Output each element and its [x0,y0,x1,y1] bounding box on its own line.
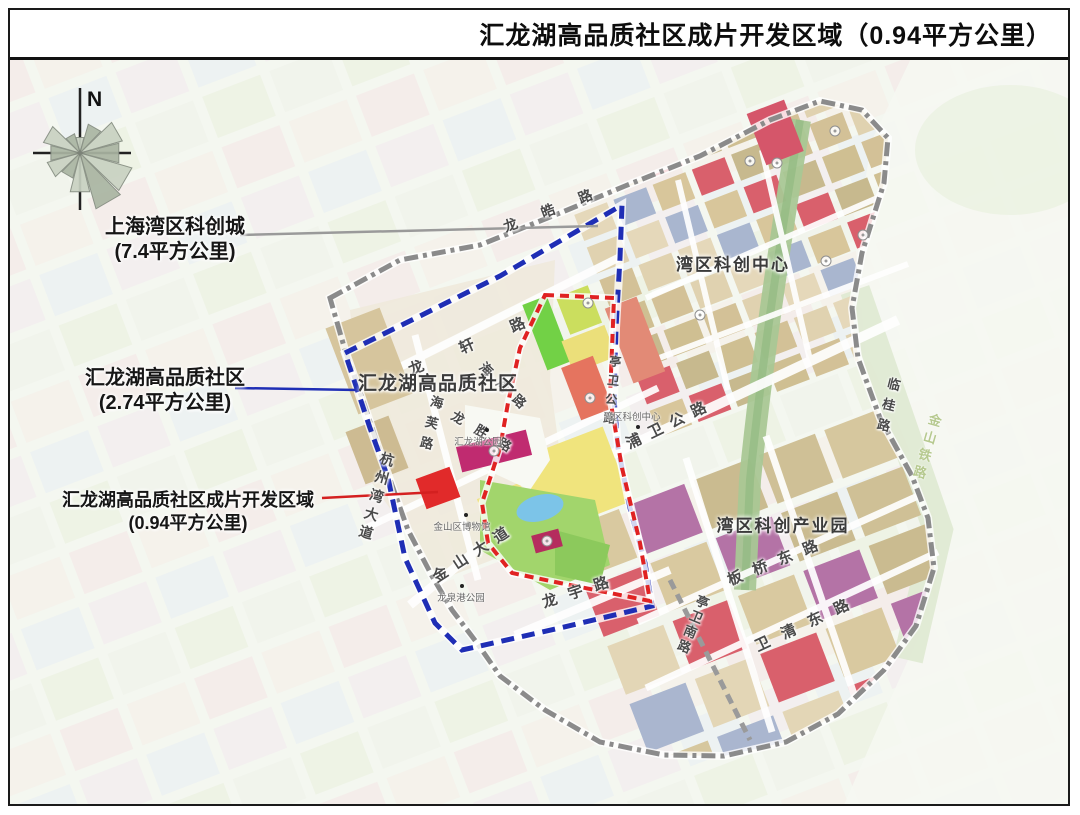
parcel-marker-3 [489,446,500,457]
parcel-marker-5 [745,156,756,167]
poi-jinshan-museum: 金山区博物馆 [433,519,490,533]
area-label-bayarea-innovation-industrial-park: 湾区科创产业园 [717,512,850,537]
title-bar: 汇龙湖高品质社区成片开发区域（0.94平方公里） [10,10,1068,60]
callout-dev-area: 汇龙湖高品质社区成片开发区域 (0.94平方公里) [38,489,338,534]
callout-sci-city-line2: (7.4平方公里) [90,240,260,265]
callout-dev-area-line1: 汇龙湖高品质社区成片开发区域 [38,489,338,512]
callout-community: 汇龙湖高品质社区 (2.74平方公里) [80,366,250,416]
parcel-marker-4 [542,536,553,547]
callout-sci-city-line1: 上海湾区科创城 [90,215,260,240]
callout-sci-city: 上海湾区科创城 (7.4平方公里) [90,215,260,265]
area-label-bayarea-innovation-center: 湾区科创中心 [676,251,790,276]
compass-rose: N [23,74,143,214]
page-title: 汇龙湖高品质社区成片开发区域（0.94平方公里） [479,16,1068,52]
parcel-marker-1 [583,298,594,309]
poi-bayarea-center-point: 湾区科创中心 [603,409,660,423]
map-canvas: N 龙皓路龙轩路海湾路海芙路龙胜路金山大道龙宇路杭州湾大道亭卫公路浦卫公路临桂路… [10,60,1068,804]
parcel-marker-9 [821,256,832,267]
parcel-marker-6 [772,158,783,169]
callout-dev-area-line2: (0.94平方公里) [38,512,338,535]
poi-bayarea-center-point-dot [636,425,640,429]
map-base-art [10,60,1068,804]
poi-jinshan-museum-dot [464,513,468,517]
map-sheet-frame: 汇龙湖高品质社区成片开发区域（0.94平方公里） [8,8,1070,806]
poi-longquangang-park: 龙泉港公园 [437,590,485,604]
parcel-marker-8 [858,230,869,241]
area-label-huilonghu-community: 汇龙湖高品质社区 [358,369,518,396]
compass-north-label: N [87,88,102,111]
parcel-marker-2 [585,393,596,404]
callout-community-line2: (2.74平方公里) [80,391,250,416]
poi-longquangang-park-dot [460,584,464,588]
poi-huilonghu-park-dot [485,428,489,432]
parcel-marker-7 [830,126,841,137]
callout-community-line1: 汇龙湖高品质社区 [80,366,250,391]
parcel-marker-10 [695,310,706,321]
